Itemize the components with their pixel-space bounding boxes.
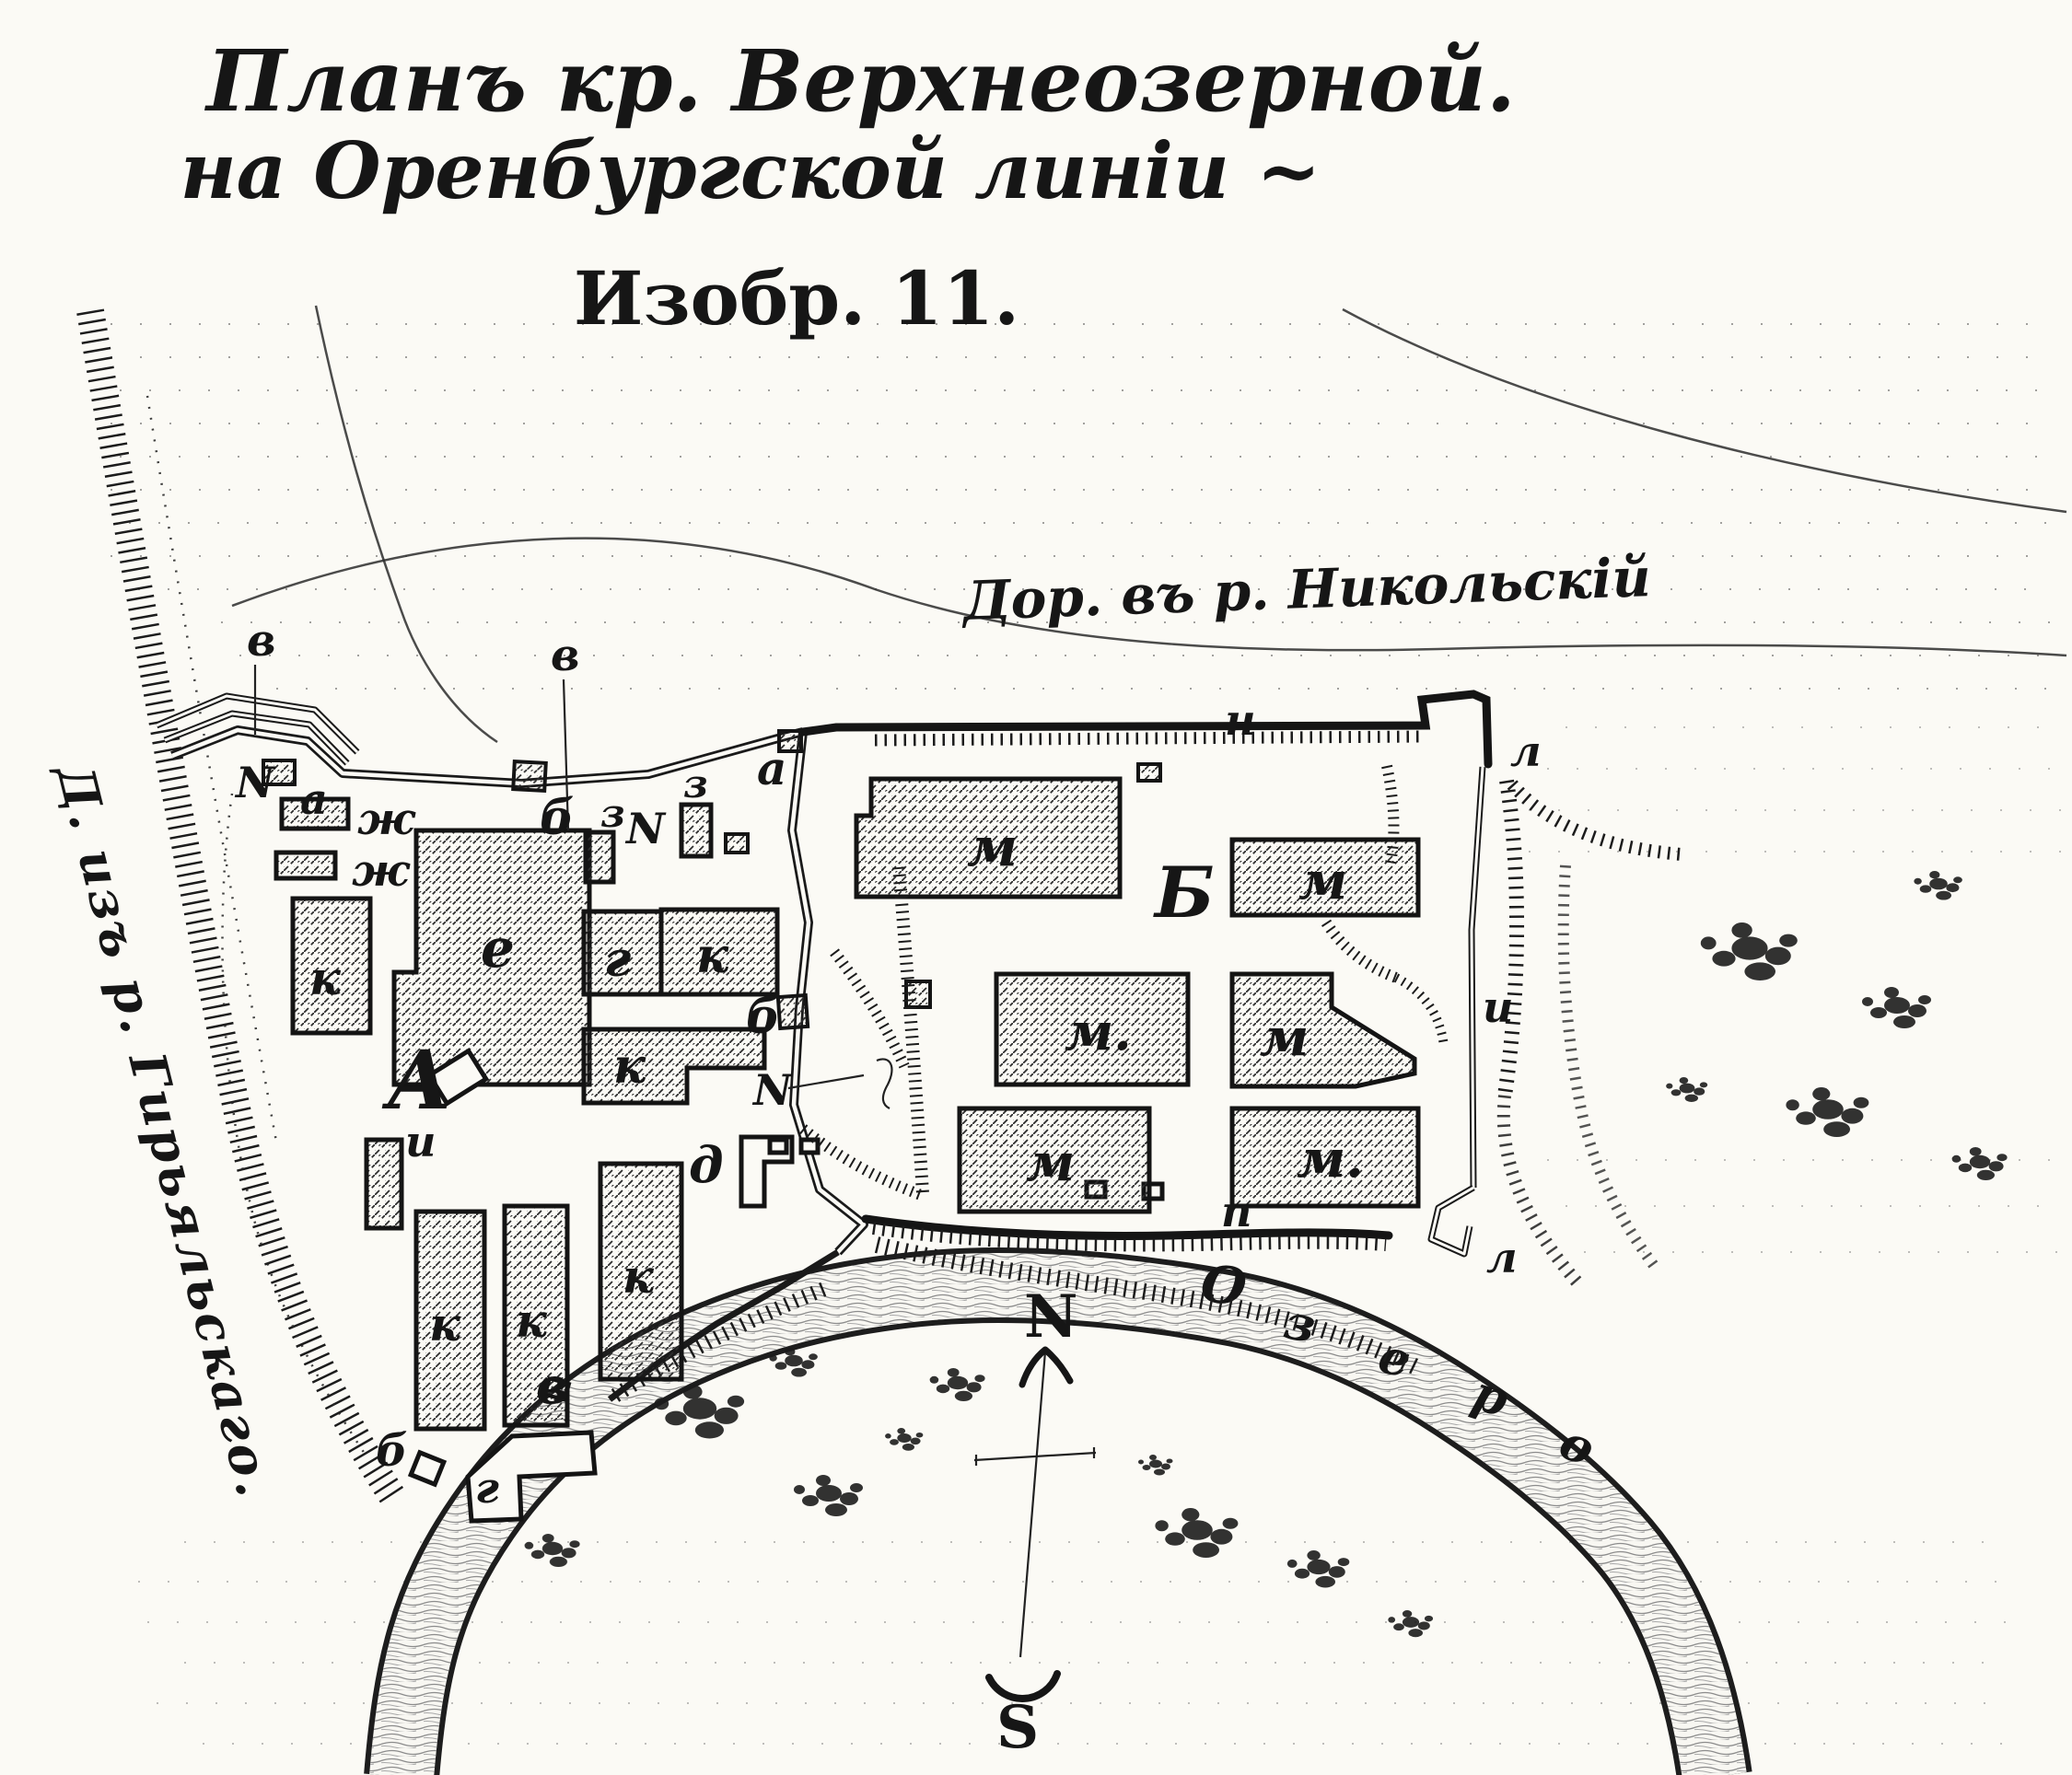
road-from-top (316, 306, 497, 742)
map-title: Планъ кр. Верхнеозерной. на Оренбургской… (180, 31, 1516, 342)
label-script-n: N (234, 758, 276, 807)
map-canvas: Планъ кр. Верхнеозерной. на Оренбургской… (0, 0, 2072, 1775)
title-line-1: Планъ кр. Верхнеозерной. (204, 31, 1516, 131)
label-l: л (1486, 1233, 1518, 1282)
label-m-dot: м. (1065, 1002, 1132, 1062)
road-arc-top-right (1343, 309, 2066, 512)
label-script-n: N (624, 804, 667, 853)
label-v: в (536, 1356, 568, 1415)
compass: N S (974, 1282, 1096, 1762)
gate-b-west (513, 761, 546, 791)
building-z (586, 832, 613, 882)
label-g: г (604, 932, 631, 988)
road-nikolsky-label: Дор. въ р. Никольскій (960, 546, 1652, 632)
label-k: к (309, 951, 342, 1005)
label-b: б (376, 1425, 408, 1477)
compass-north-label: N (1024, 1282, 1078, 1352)
label-l: л (1510, 726, 1542, 776)
gate-b-middle (778, 995, 808, 1028)
label-m: м (1298, 851, 1347, 911)
compass-arrowhead (1022, 1350, 1070, 1385)
b-top-wall (803, 694, 1488, 764)
label-d: д (689, 1135, 724, 1194)
building-i (367, 1140, 402, 1228)
label-b: б (540, 790, 575, 846)
label-e: е (481, 917, 515, 980)
label-m: м (1260, 1007, 1309, 1068)
label-zh: ж (357, 794, 416, 845)
label-a: а (300, 774, 328, 824)
lake-letter: О (1197, 1253, 1251, 1319)
label-b: б (746, 989, 781, 1045)
section-b-label: Б (1153, 852, 1215, 934)
compass-south-label: S (996, 1693, 1039, 1762)
label-k: к (613, 1038, 646, 1095)
b-top-wall-ticks (875, 737, 1423, 740)
title-line-3: Изобр. 11. (574, 255, 1019, 342)
b-bottom-wall (866, 1219, 1389, 1236)
tilted-shed (411, 1453, 444, 1485)
label-z: з (600, 791, 625, 836)
small-square (726, 834, 748, 853)
label-script-n: N (751, 1065, 794, 1115)
label-k: к (516, 1294, 548, 1348)
label-k: к (429, 1297, 461, 1352)
small-post (1138, 764, 1160, 781)
road-giryalsky-label: Д. изъ р. Гирьяльскаго. (45, 756, 285, 1504)
historic-fortress-plan: Планъ кр. Верхнеозерной. на Оренбургской… (0, 0, 2072, 1775)
building-k-lshape (584, 1029, 764, 1103)
label-k: к (696, 928, 729, 984)
label-v: в (247, 615, 276, 667)
compass-needle (1020, 1352, 1045, 1657)
small-square (770, 1140, 786, 1153)
label-m-dot: м. (1297, 1129, 1364, 1189)
label-n: н (1225, 695, 1256, 745)
label-a: а (757, 741, 786, 795)
label-m: м (1026, 1132, 1075, 1193)
building-zh (276, 853, 335, 878)
small-square (801, 1140, 818, 1153)
label-z: з (683, 761, 708, 806)
building-z (681, 805, 711, 856)
label-i: и (1483, 982, 1513, 1032)
section-a-label: А (381, 1032, 453, 1128)
title-line-2: на Оренбургской линіи ~ (180, 125, 1321, 216)
label-v: в (551, 630, 580, 681)
compass-cross (974, 1447, 1096, 1466)
label-g: г (475, 1463, 499, 1513)
label-k: к (623, 1249, 655, 1304)
label-m: м (967, 816, 1018, 878)
label-zh: ж (352, 845, 411, 897)
label-p: п (1221, 1187, 1251, 1236)
